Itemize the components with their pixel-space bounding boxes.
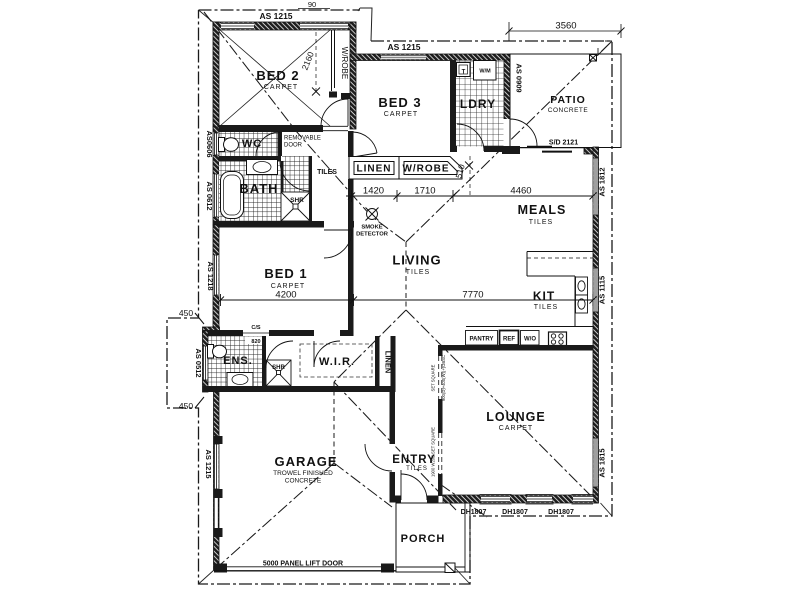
svg-text:W/M: W/M — [479, 69, 491, 75]
svg-text:PANTRY: PANTRY — [470, 337, 494, 343]
svg-text:AS0606: AS0606 — [205, 130, 214, 157]
svg-text:SET SQUARE: SET SQUARE — [431, 364, 436, 391]
svg-text:450: 450 — [179, 308, 193, 318]
svg-text:4200: 4200 — [275, 290, 296, 301]
svg-text:TILES: TILES — [406, 466, 428, 472]
svg-text:AS 1215: AS 1215 — [259, 11, 292, 21]
svg-text:TILES: TILES — [317, 169, 337, 176]
svg-text:W/ROBE: W/ROBE — [340, 47, 349, 79]
svg-text:W/O: W/O — [524, 337, 536, 343]
svg-text:7770: 7770 — [462, 290, 483, 301]
svg-text:REMOVABLE: REMOVABLE — [284, 136, 321, 142]
svg-text:AS 0512: AS 0512 — [194, 348, 203, 377]
svg-text:SHR: SHR — [272, 365, 285, 371]
svg-text:CONCRETE: CONCRETE — [548, 107, 589, 114]
svg-text:DH1807: DH1807 — [461, 509, 487, 516]
svg-text:CARPET: CARPET — [499, 425, 533, 432]
svg-text:SMOKE: SMOKE — [361, 225, 382, 231]
svg-text:W/ROBE: W/ROBE — [402, 164, 449, 175]
svg-text:WC: WC — [242, 138, 262, 150]
svg-text:S/D 2121: S/D 2121 — [549, 140, 578, 147]
svg-text:DOOR: DOOR — [284, 143, 303, 149]
svg-text:LDRY: LDRY — [460, 97, 496, 111]
svg-text:LINEN: LINEN — [384, 351, 393, 374]
svg-text:BED 1: BED 1 — [264, 266, 307, 281]
svg-text:BED 2: BED 2 — [256, 68, 299, 83]
svg-text:1420: 1420 — [363, 186, 384, 197]
svg-text:820: 820 — [251, 339, 260, 345]
svg-text:AS 1215: AS 1215 — [204, 449, 213, 478]
svg-text:LINEN: LINEN — [357, 164, 392, 175]
svg-text:DH1807: DH1807 — [502, 509, 528, 516]
svg-text:CARPET: CARPET — [264, 84, 298, 91]
svg-text:W.I.R.: W.I.R. — [319, 356, 355, 368]
svg-text:AS 0612: AS 0612 — [205, 181, 214, 210]
svg-text:ENTRY: ENTRY — [392, 454, 436, 466]
svg-text:PATIO: PATIO — [550, 94, 586, 106]
svg-text:DH1807: DH1807 — [548, 509, 574, 516]
svg-text:TILES: TILES — [534, 304, 558, 311]
svg-text:MEALS: MEALS — [518, 203, 567, 217]
svg-text:PORCH: PORCH — [401, 533, 446, 545]
svg-text:C/S: C/S — [251, 325, 261, 331]
svg-text:450: 450 — [179, 401, 193, 411]
svg-text:5000 PANEL LIFT DOOR: 5000 PANEL LIFT DOOR — [263, 561, 343, 568]
svg-text:BED 3: BED 3 — [378, 95, 421, 110]
svg-text:CARPET: CARPET — [384, 111, 418, 118]
svg-text:T: T — [462, 70, 466, 76]
svg-text:CONCRETE: CONCRETE — [285, 478, 322, 485]
svg-text:TILES: TILES — [529, 219, 553, 226]
svg-text:BATH: BATH — [239, 181, 278, 196]
svg-text:1710: 1710 — [414, 186, 435, 197]
svg-text:900(D)+400(W)(+)OBSC: 900(D)+400(W)(+)OBSC — [441, 355, 446, 401]
svg-text:LOUNGE: LOUNGE — [486, 410, 545, 424]
svg-text:LIVING: LIVING — [392, 253, 441, 268]
svg-text:3560: 3560 — [555, 21, 576, 32]
svg-text:DETECTOR: DETECTOR — [356, 232, 389, 238]
svg-text:4460: 4460 — [510, 186, 531, 197]
svg-text:AS 1218: AS 1218 — [206, 261, 215, 290]
svg-text:AS 1115: AS 1115 — [598, 276, 607, 304]
svg-text:KIT: KIT — [533, 289, 555, 303]
svg-text:GARAGE: GARAGE — [274, 454, 337, 469]
svg-text:REF: REF — [503, 337, 515, 343]
svg-text:TROWEL FINISHED: TROWEL FINISHED — [273, 470, 333, 477]
svg-text:1900 W20E SET SQUARE: 1900 W20E SET SQUARE — [431, 427, 436, 477]
svg-text:AS 1815: AS 1815 — [598, 448, 607, 477]
svg-text:SHR: SHR — [290, 197, 304, 204]
svg-text:ENS.: ENS. — [223, 355, 253, 367]
svg-text:AS 1812: AS 1812 — [598, 167, 607, 196]
svg-text:AS 1215: AS 1215 — [387, 42, 420, 52]
svg-text:TILES: TILES — [406, 269, 430, 276]
svg-text:90: 90 — [308, 0, 316, 9]
svg-text:AS 0909: AS 0909 — [515, 63, 524, 92]
